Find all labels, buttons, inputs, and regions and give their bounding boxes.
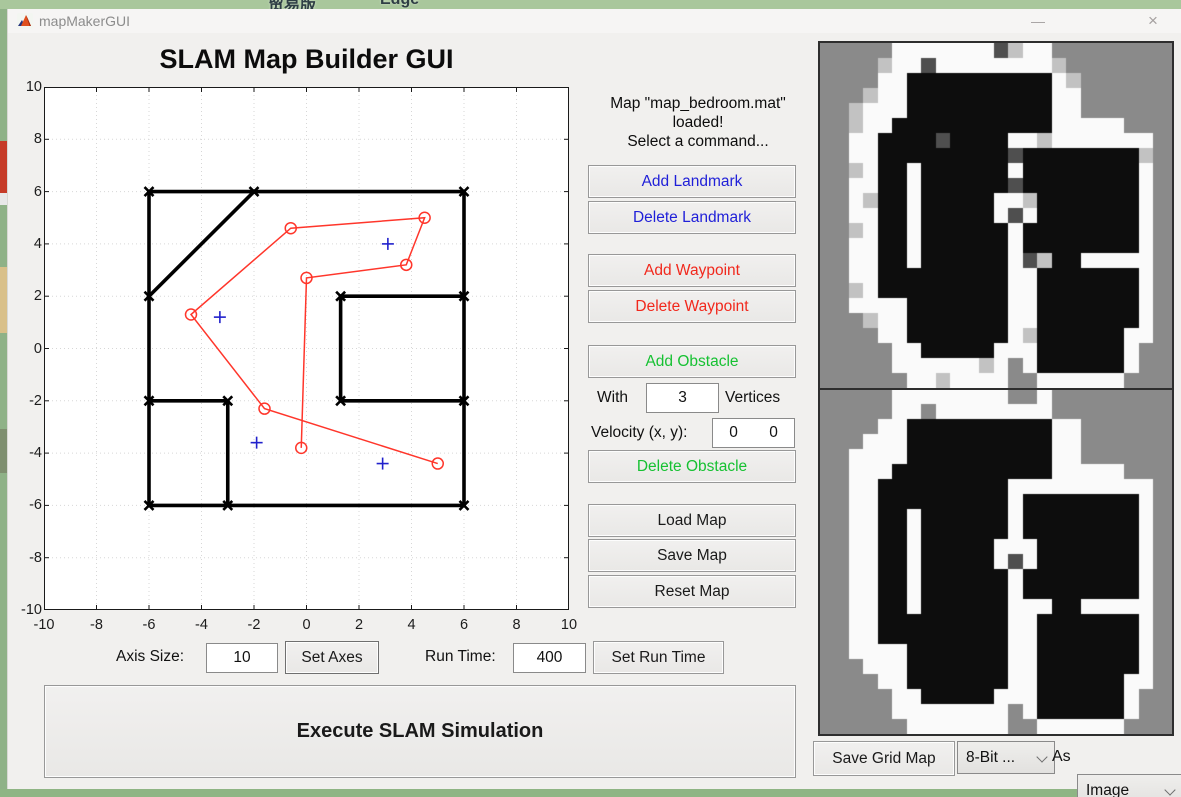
desktop-icon-fragment-red: [0, 141, 7, 193]
screen: 贸易版 Edge mapMakerGUI — × SLAM Map Bui: [0, 0, 1181, 797]
minimize-button[interactable]: —: [1023, 11, 1053, 31]
y-tick-label: -10: [8, 602, 42, 618]
y-tick-label: 6: [8, 184, 42, 200]
x-tick-label: 4: [390, 617, 434, 633]
map-plot-canvas[interactable]: [44, 87, 569, 610]
velocity-y-input[interactable]: 0: [753, 418, 795, 448]
close-button[interactable]: ×: [1138, 11, 1168, 31]
x-tick-label: 6: [442, 617, 486, 633]
status-message: Map "map_bedroom.mat" loaded! Select a c…: [588, 94, 808, 151]
velocity-x-input[interactable]: 0: [712, 418, 755, 448]
y-tick-label: 0: [8, 341, 42, 357]
matlab-icon: [17, 13, 33, 29]
y-tick-label: -4: [8, 445, 42, 461]
x-tick-label: 10: [547, 617, 591, 633]
format-value: Image: [1086, 782, 1129, 797]
bit-depth-dropdown[interactable]: 8-Bit ...: [957, 741, 1055, 774]
y-tick-label: 2: [8, 288, 42, 304]
set-run-time-button[interactable]: Set Run Time: [593, 641, 724, 674]
vertices-input[interactable]: 3: [646, 383, 719, 413]
status-line-3: Select a command...: [588, 132, 808, 151]
status-line-2: loaded!: [588, 113, 808, 132]
occupancy-grid-panel-bottom: [818, 388, 1174, 736]
x-tick-label: -10: [22, 617, 66, 633]
y-tick-label: 8: [8, 131, 42, 147]
desktop-bottom-strip: [0, 789, 1181, 797]
delete-obstacle-button[interactable]: Delete Obstacle: [588, 450, 796, 483]
desktop-icon-fragment-white: [0, 193, 7, 205]
x-tick-label: -2: [232, 617, 276, 633]
as-label: As: [1052, 741, 1071, 772]
save-grid-map-button[interactable]: Save Grid Map: [813, 741, 955, 776]
save-map-button[interactable]: Save Map: [588, 539, 796, 572]
desktop-icon-fragment-olive: [0, 429, 7, 473]
run-time-label: Run Time:: [425, 642, 496, 672]
mapmaker-window: mapMakerGUI — × SLAM Map Builder GUI -10…: [7, 9, 1181, 789]
map-plot[interactable]: [44, 87, 569, 610]
x-tick-label: -4: [180, 617, 224, 633]
desktop-left-strip: [0, 9, 7, 790]
x-tick-label: 0: [285, 617, 329, 633]
x-tick-label: 2: [337, 617, 381, 633]
execute-slam-button[interactable]: Execute SLAM Simulation: [44, 685, 796, 778]
with-label: With: [597, 383, 628, 412]
format-dropdown[interactable]: Image: [1077, 774, 1181, 797]
y-tick-label: 10: [8, 79, 42, 95]
vertices-label: Vertices: [725, 383, 780, 412]
occupancy-grid-image-top: [820, 43, 1168, 388]
desktop-label-edge: Edge: [380, 0, 419, 9]
run-time-input[interactable]: 400: [513, 643, 586, 673]
page-title: SLAM Map Builder GUI: [44, 44, 569, 75]
desktop-label-cn: 贸易版: [268, 0, 316, 9]
desktop-top-strip: 贸易版 Edge: [0, 0, 1181, 9]
add-obstacle-button[interactable]: Add Obstacle: [588, 345, 796, 378]
add-waypoint-button[interactable]: Add Waypoint: [588, 254, 796, 287]
x-tick-label: -8: [75, 617, 119, 633]
occupancy-grid-image-bottom: [820, 390, 1168, 734]
y-tick-label: -8: [8, 550, 42, 566]
delete-landmark-button[interactable]: Delete Landmark: [588, 201, 796, 234]
velocity-label: Velocity (x, y):: [591, 418, 687, 447]
chevron-down-icon: [1036, 751, 1047, 762]
window-titlebar: mapMakerGUI — ×: [8, 9, 1181, 33]
reset-map-button[interactable]: Reset Map: [588, 575, 796, 608]
x-tick-label: -6: [127, 617, 171, 633]
status-line-1: Map "map_bedroom.mat": [588, 94, 808, 113]
y-tick-label: -2: [8, 393, 42, 409]
desktop-icon-fragment-tan: [0, 267, 7, 333]
y-tick-label: -6: [8, 497, 42, 513]
delete-waypoint-button[interactable]: Delete Waypoint: [588, 290, 796, 323]
axis-size-input[interactable]: 10: [206, 643, 278, 673]
add-landmark-button[interactable]: Add Landmark: [588, 165, 796, 198]
bit-depth-value: 8-Bit ...: [966, 749, 1015, 767]
set-axes-button[interactable]: Set Axes: [285, 641, 379, 674]
y-tick-label: 4: [8, 236, 42, 252]
axis-size-label: Axis Size:: [116, 642, 184, 672]
chevron-down-icon: [1164, 784, 1175, 795]
window-title: mapMakerGUI: [39, 13, 130, 29]
load-map-button[interactable]: Load Map: [588, 504, 796, 537]
x-tick-label: 8: [495, 617, 539, 633]
occupancy-grid-panel-top: [818, 41, 1174, 390]
